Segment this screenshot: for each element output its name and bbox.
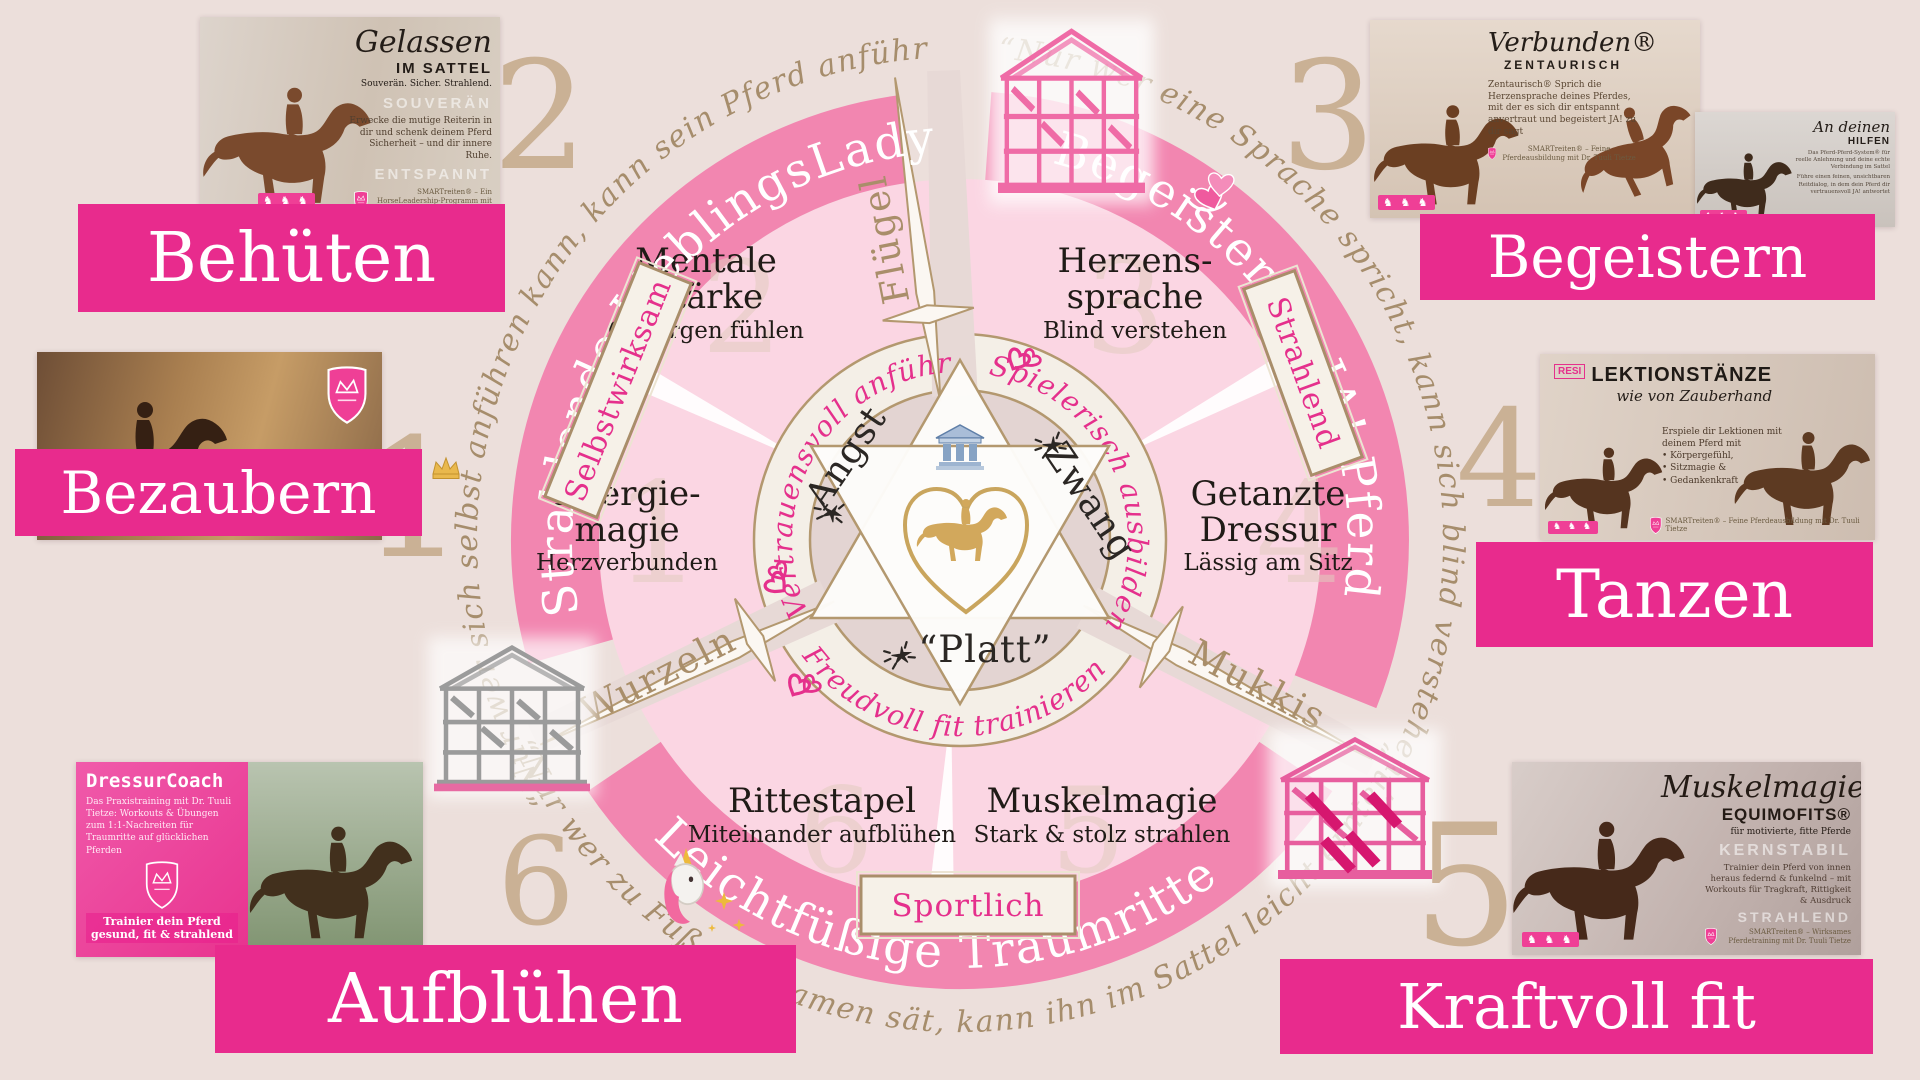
numeral-3: 3 [1280,30,1375,204]
product-tagline: Souverän. Sicher. Strahlend. [340,79,492,89]
segment-herzenssprache: Herzens-sprache Blind verstehen [1043,241,1227,344]
blocked-word-platt: “Platt” [918,628,1051,671]
segment-getanzte-dressur: GetanzteDressur Lässig am Sitz [1183,474,1352,576]
product-body: Das Praxistraining mit Dr. Tuuli Tietze:… [86,796,238,857]
product-footer: SMARTreiten® – Feine Pferdeausbildung mi… [1500,145,1638,163]
ghost-word: KERNSTABIL [1661,842,1851,860]
banner-tanzen: Tanzen [1476,542,1873,647]
product-card-muskelmagie-equimofits[interactable]: Muskelmagie EQUIMOFITS® für motivierte, … [1512,762,1861,955]
banner-bezaubern: Bezaubern [15,449,422,536]
banner-kraftvoll-fit: Kraftvoll fit [1280,959,1873,1054]
smartreiten-shield-icon [145,861,179,909]
product-caption: Trainier dein Pferd gesund, fit & strahl… [86,913,238,943]
product-title: Verbunden® [1488,28,1638,58]
svg-text:Herzens-sprache: Herzens-sprache [1058,241,1213,317]
ghost-word: STRAHLEND [1661,909,1851,925]
svg-text:GetanzteDressur: GetanzteDressur [1191,474,1346,550]
banner-behueten: Behüten [78,204,505,312]
smartreiten-shield-icon [326,366,368,424]
product-subtitle: HILFEN [1794,136,1890,147]
ghost-word: ENTSPANNT [340,166,492,183]
product-bullet: • Körpergefühl, [1662,450,1782,462]
ghost-word: SOUVERÄN [340,95,492,112]
smartreiten-shield-icon [1705,928,1717,945]
product-card-lektionstaenze[interactable]: RESI LEKTIONSTÄNZE wie von Zauberhand Er… [1540,354,1875,540]
svg-text:Lässig am Sitz: Lässig am Sitz [1183,550,1352,576]
product-body: Erspiele dir Lektionen mit deinem Pferd … [1662,426,1782,450]
greenhouse-sketch-left [428,637,596,798]
smartreiten-shield-icon [1650,517,1662,534]
numeral-5: 5 [1413,788,1520,984]
product-sub: für motivierte, fitte Pferde [1661,827,1851,837]
product-footer: SMARTreiten® – Feine Pferdeausbildung mi… [1666,517,1875,535]
infographic-page: { "colors": { "background": "#ecdfdb", "… [0,0,1920,1080]
product-title: Gelassen [340,25,492,60]
svg-text:Stark & stolz strahlen: Stark & stolz strahlen [974,822,1231,848]
product-bullet: • Sitzmagie & [1662,462,1782,474]
product-card-dressurcoach[interactable]: DressurCoach Das Praxistraining mit Dr. … [76,762,423,957]
product-card-gelassen-im-sattel[interactable]: Gelassen IM SATTEL Souverän. Sicher. Str… [200,17,500,218]
numeral-4: 4 [1456,381,1542,538]
product-body: Zentaurisch® Sprich die Herzensprache de… [1488,80,1638,138]
product-footer: SMARTreiten® – Wirksames Pferdetraining … [1721,928,1851,946]
badge-sportlich: Sportlich [857,872,1079,938]
horses-logo: ♞ ♞ ♞ [1548,521,1598,534]
product-body: Erwecke die mutige Reiterin in dir und s… [340,116,492,163]
product-bullet: • Gedankenkraft [1662,475,1782,487]
product-title: LEKTIONSTÄNZE [1591,364,1772,387]
product-title: Muskelmagie [1661,770,1851,805]
product-card-verbunden-zentaurisch[interactable]: Verbunden® ZENTAURISCH Zentaurisch® Spri… [1370,20,1700,218]
product-body: Trainier dein Pferd von innen heraus fed… [1701,863,1851,907]
product-card-an-deinen-hilfen[interactable]: An deinen HILFEN Das Pferd-Pferd-System®… [1695,112,1895,227]
resi-logo: RESI [1554,364,1585,379]
smartreiten-shield-icon [1488,144,1496,163]
banner-begeistern: Begeistern [1420,214,1875,300]
greenhouse-sketch-top [989,19,1154,203]
product-title: An deinen [1794,118,1890,136]
horse-rider-photo [243,823,423,949]
numeral-6: 6 [497,811,575,953]
product-sub: Das Pferd-Pferd-System® für reelle Anleh… [1794,150,1890,171]
svg-text:Rittestapel: Rittestapel [728,781,916,821]
product-subtitle: IM SATTEL [340,60,492,77]
numeral-2: 2 [492,30,587,204]
svg-text:Muskelmagie: Muskelmagie [986,781,1217,821]
horses-logo: ♞ ♞ ♞ [1522,932,1579,947]
svg-text:Miteinander aufblühen: Miteinander aufblühen [688,822,956,848]
svg-text:Sportlich: Sportlich [891,888,1044,924]
product-title: DressurCoach [86,770,238,792]
product-subtitle: ZENTAURISCH [1488,58,1638,72]
product-subtitle: EQUIMOFITS® [1661,805,1851,825]
product-subtitle: wie von Zauberhand [1591,387,1772,405]
banner-aufbluehen: Aufblühen [215,945,796,1053]
svg-text:Blind verstehen: Blind verstehen [1043,318,1227,344]
segment-muskelmagie: Muskelmagie Stark & stolz strahlen [974,781,1231,848]
horses-logo: ♞ ♞ ♞ [1378,195,1435,210]
product-body: Führe einen feinen, unsichtbaren Reitdia… [1794,174,1890,195]
